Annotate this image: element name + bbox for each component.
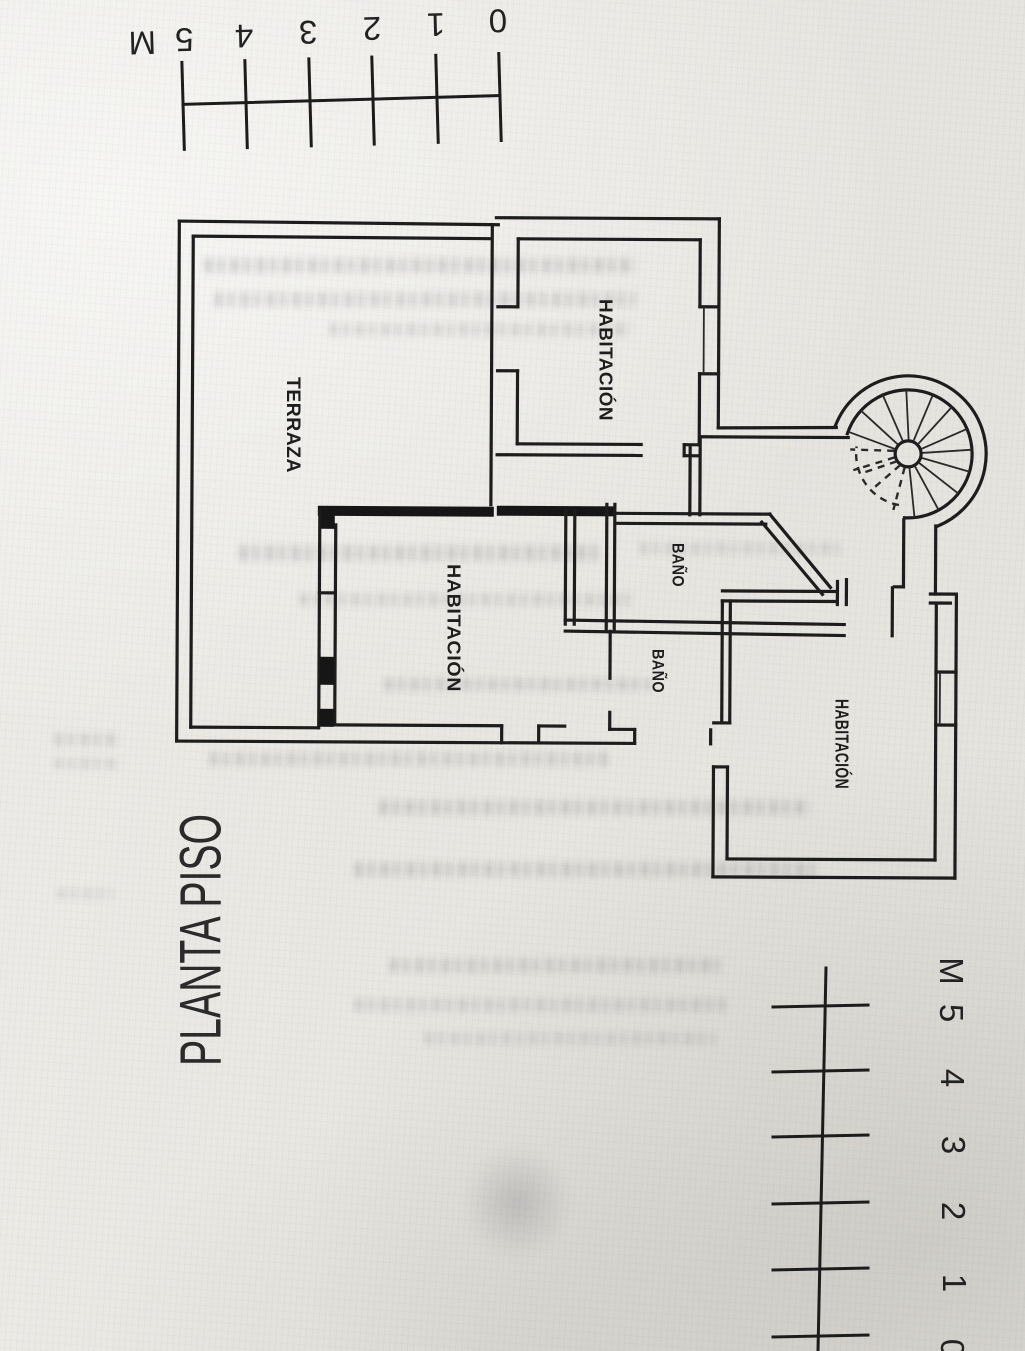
scale-bottom-label-2: 2 <box>935 1202 972 1220</box>
room-label-habitacion-top: HABITACIÓN <box>595 299 616 421</box>
scale-top-label-4: 4 <box>234 17 253 54</box>
room-label-bano-lower: BAÑO <box>649 649 669 693</box>
scale-bar-top: 0 1 2 3 4 5 M <box>128 2 511 151</box>
scale-top-label-1: 1 <box>426 6 445 43</box>
scale-top-label-3: 3 <box>298 14 317 51</box>
scanned-floor-plan-page: 0 1 2 3 4 5 M M 5 4 3 2 1 0 <box>0 0 1025 1351</box>
room-label-habitacion-bottom: HABITACIÓN <box>831 699 852 789</box>
floor-plan-drawing: 0 1 2 3 4 5 M M 5 4 3 2 1 0 <box>0 0 1025 1351</box>
scale-top-label-2: 2 <box>362 10 381 47</box>
spiral-staircase <box>834 375 986 603</box>
room-label-terraza: TERRAZA <box>282 377 303 473</box>
scale-bar-bottom: M 5 4 3 2 1 0 <box>773 957 973 1351</box>
scale-bottom-label-3: 3 <box>935 1136 972 1154</box>
scale-top-label-5: 5 <box>175 21 194 58</box>
scale-bottom-label-1: 1 <box>936 1274 973 1292</box>
scale-top-label-0: 0 <box>488 2 507 39</box>
walls <box>176 216 987 878</box>
scale-bottom-label-5: 5 <box>933 1004 970 1022</box>
scale-bottom-label-4: 4 <box>934 1069 971 1087</box>
scale-bottom-unit: M <box>933 957 970 985</box>
room-label-habitacion-middle: HABITACIÓN <box>443 564 464 692</box>
room-label-bano-upper: BAÑO <box>669 543 689 587</box>
scale-bottom-label-0: 0 <box>934 1339 971 1351</box>
scale-top-unit: M <box>128 24 157 62</box>
plan-title: PLANTA PISO <box>168 814 233 1066</box>
